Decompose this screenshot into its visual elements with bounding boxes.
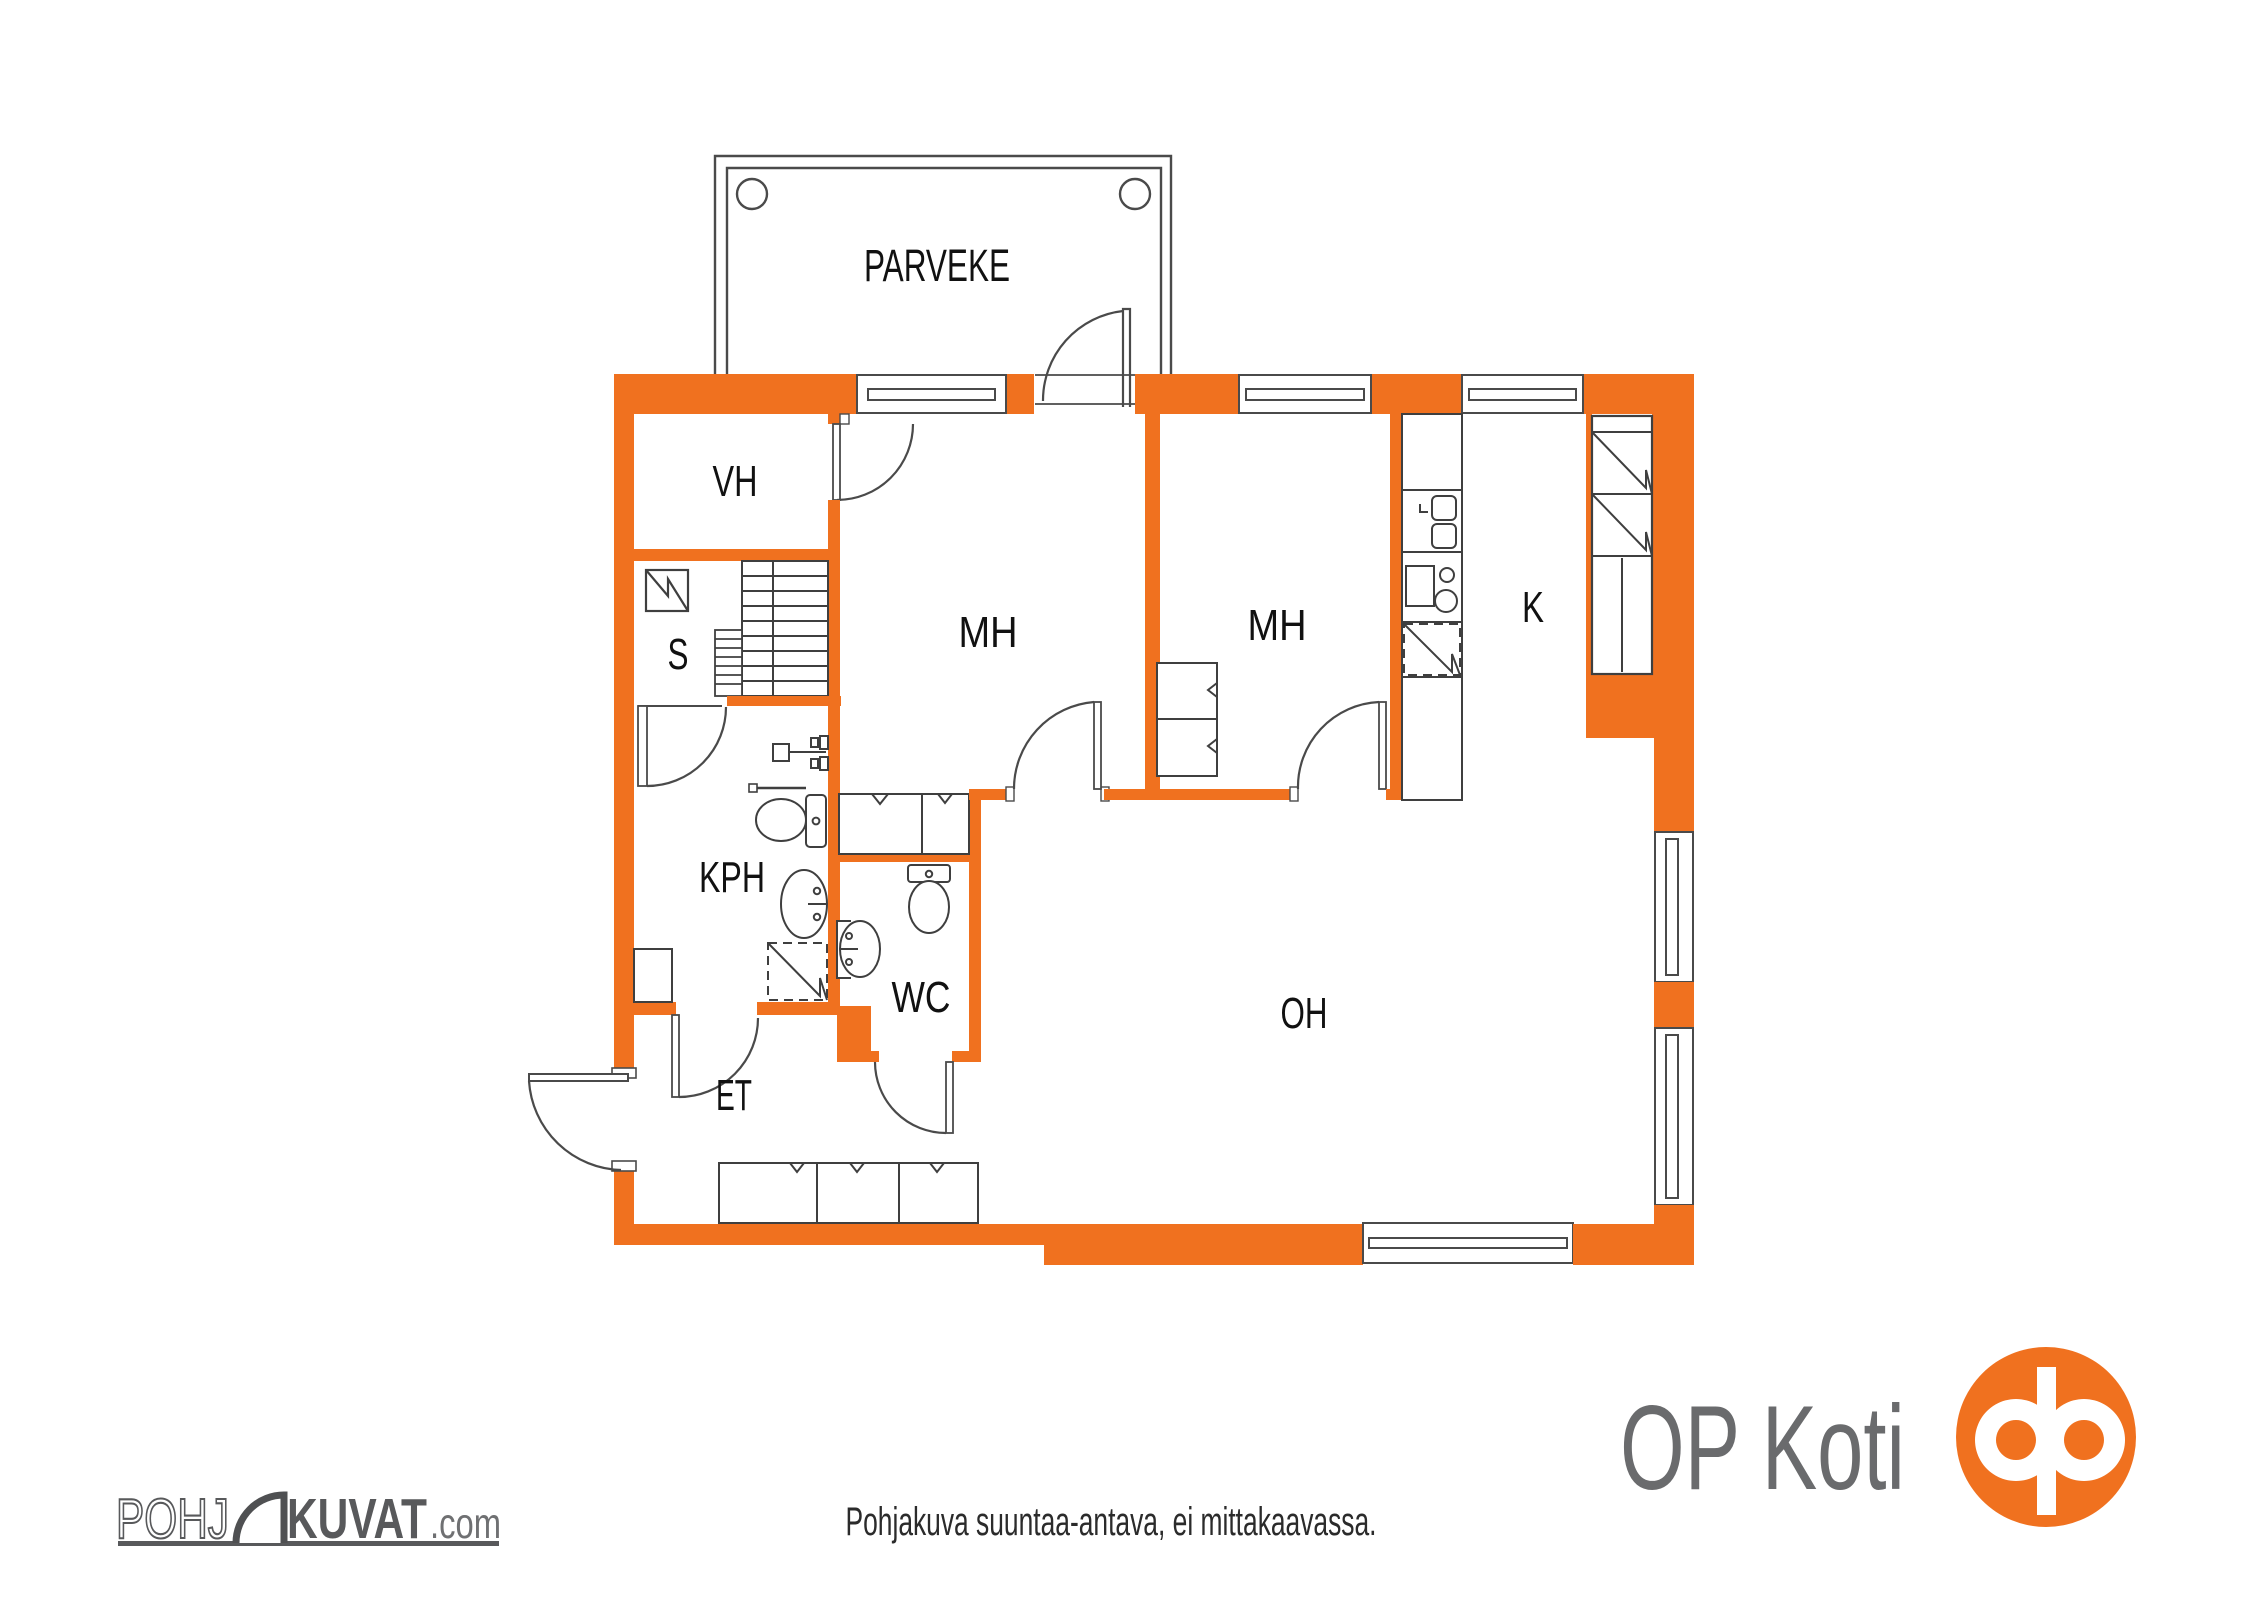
svg-text:Pohjakuva suuntaa-antava, ei m: Pohjakuva suuntaa-antava, ei mittakaavas… <box>846 1500 1377 1544</box>
svg-text:MH: MH <box>1248 601 1307 650</box>
svg-text:MH: MH <box>959 608 1018 657</box>
svg-text:K: K <box>1522 583 1544 632</box>
svg-text:PARVEKE: PARVEKE <box>864 240 1010 291</box>
svg-text:S: S <box>668 630 689 679</box>
svg-text:.com: .com <box>430 1500 501 1548</box>
svg-text:OH: OH <box>1281 989 1328 1038</box>
svg-text:VH: VH <box>713 457 758 506</box>
svg-text:KPH: KPH <box>699 853 765 902</box>
svg-text:WC: WC <box>892 973 951 1022</box>
svg-text:OP Koti: OP Koti <box>1620 1381 1905 1515</box>
svg-text:ET: ET <box>716 1071 752 1120</box>
